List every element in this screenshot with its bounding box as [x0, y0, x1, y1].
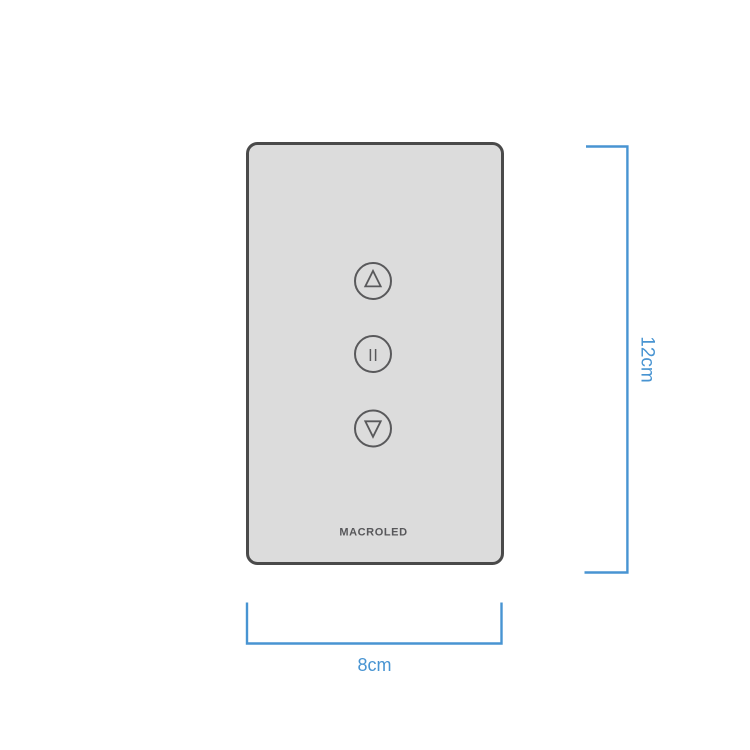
svg-text:8cm: 8cm [357, 655, 391, 675]
svg-text:12cm: 12cm [637, 336, 658, 382]
svg-text:MACROLED: MACROLED [339, 527, 407, 539]
